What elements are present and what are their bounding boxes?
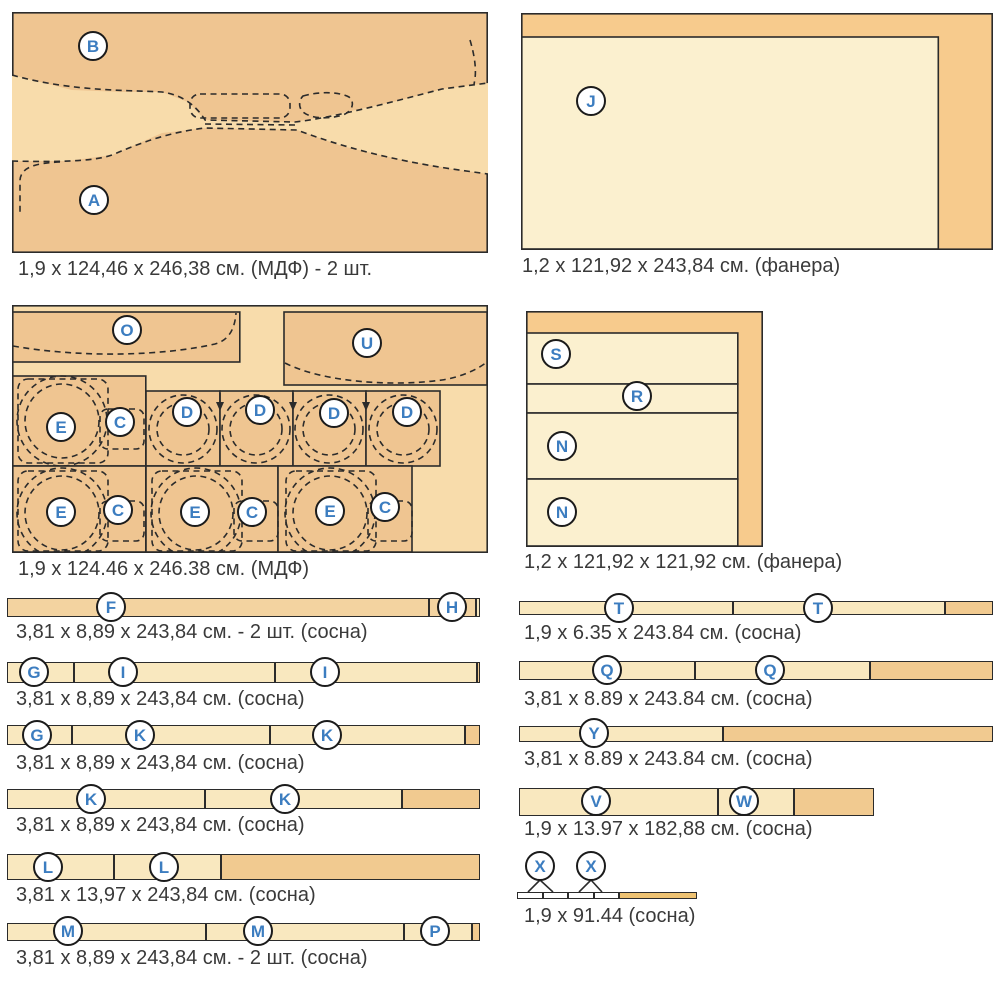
part-label-J: J [576,86,606,116]
part-label-E: E [315,496,345,526]
part-label-I: I [310,657,340,687]
strip-G-I-I [7,662,480,683]
part-label-D: D [172,397,202,427]
caption-strip-gii: 3,81 x 8,89 x 243,84 см. (сосна) [16,688,305,711]
caption-plywood-sheet-1: 1,2 x 121,92 x 243,84 см. (фанера) [522,255,840,278]
part-label-N: N [547,431,577,461]
part-label-V: V [581,786,611,816]
part-label-D: D [245,395,275,425]
sheet-plywood-large [521,13,993,250]
part-label-I: I [108,657,138,687]
part-label-O: O [112,315,142,345]
caption-strip-y: 3,81 x 8.89 x 243.84 см. (сосна) [524,748,813,771]
part-label-K: K [125,720,155,750]
part-label-A: A [79,185,109,215]
part-label-H: H [437,592,467,622]
part-label-G: G [19,657,49,687]
caption-mdf-sheet-2: 1,9 x 124.46 x 246.38 см. (МДФ) [18,558,309,581]
part-label-L: L [149,852,179,882]
part-label-E: E [180,497,210,527]
part-label-N: N [547,497,577,527]
caption-strip-gkk: 3,81 x 8,89 x 243,84 см. (сосна) [16,752,305,775]
part-label-K: K [270,784,300,814]
part-label-S: S [541,339,571,369]
part-label-X: X [525,851,555,881]
part-label-E: E [46,412,76,442]
caption-strip-ll: 3,81 x 13,97 x 243,84 см. (сосна) [16,884,316,907]
strip-F-H [7,598,480,617]
caption-strip-tt: 1,9 x 6.35 x 243.84 см. (сосна) [524,622,801,645]
caption-strip-mmp: 3,81 x 8,89 x 243,84 см. - 2 шт. (сосна) [16,947,368,970]
part-label-T: T [604,593,634,623]
caption-strip-kk: 3,81 x 8,89 x 243,84 см. (сосна) [16,814,305,837]
part-label-C: C [103,495,133,525]
part-label-L: L [33,852,63,882]
strip-V-W [519,788,874,816]
part-label-Y: Y [579,718,609,748]
caption-strip-qq: 3,81 x 8.89 x 243.84 см. (сосна) [524,688,813,711]
part-J [522,37,939,249]
part-label-K: K [312,720,342,750]
part-label-C: C [237,497,267,527]
part-label-B: B [78,31,108,61]
part-label-M: M [243,916,273,946]
strip-T-T [519,601,993,615]
part-label-D: D [319,398,349,428]
caption-strip-fh: 3,81 x 8,89 x 243,84 см. - 2 шт. (сосна) [16,621,368,644]
part-label-Q: Q [592,655,622,685]
caption-strip-vw: 1,9 x 13.97 x 182,88 см. (сосна) [524,818,813,841]
strip-L-L [7,854,480,880]
part-label-G: G [22,720,52,750]
part-label-U: U [352,328,382,358]
part-label-K: K [76,784,106,814]
cutting-diagram: B A 1,9 x 124,46 x 246,38 см. (МДФ) - 2 … [0,0,1000,981]
caption-mdf-sheet-1: 1,9 x 124,46 x 246,38 см. (МДФ) - 2 шт. [18,258,372,281]
part-label-R: R [622,381,652,411]
part-label-T: T [803,593,833,623]
part-label-C: C [370,492,400,522]
strip-G-K-K [7,725,480,745]
caption-strip-xx: 1,9 x 91.44 (сосна) [524,905,695,928]
part-label-D: D [392,397,422,427]
part-label-Q: Q [755,655,785,685]
part-label-X: X [576,851,606,881]
part-label-C: C [105,407,135,437]
part-label-P: P [420,916,450,946]
part-label-W: W [729,786,759,816]
caption-plywood-sheet-2: 1,2 x 121,92 x 121,92 см. (фанера) [524,551,842,574]
part-label-F: F [96,592,126,622]
part-label-E: E [46,497,76,527]
part-label-M: M [53,916,83,946]
